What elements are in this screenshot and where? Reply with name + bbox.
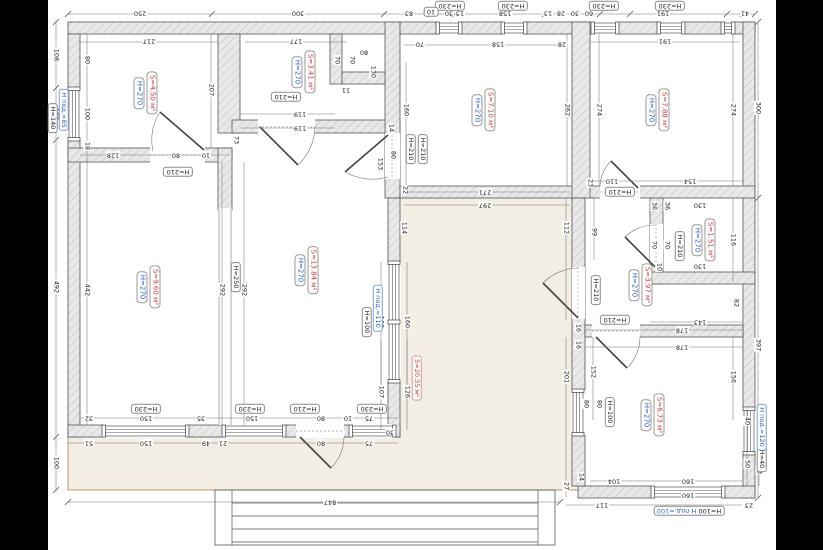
dimension-label: 80 [171,152,181,159]
dimension-label: 18 [84,141,91,151]
dimension-label: 23 [744,502,754,509]
dimension-label: 30 [385,429,395,436]
height-tag: H=230 [498,1,528,11]
dimension-label: 119 [293,111,307,118]
height-tag: H=210 [675,231,685,261]
dimension-label: 99 [591,227,598,237]
dimension-label: 28 [557,41,567,48]
height-tag: H=230 [235,404,265,414]
sill-height-tag: H под.=110 [373,285,383,332]
room-height-label: H=270 [692,224,703,256]
room-height-label: H=270 [134,77,145,109]
dimension-label: 262 [564,103,571,117]
dimension-label: 32 [84,415,94,422]
dimension-label: 73 [233,135,240,145]
dimension-label: 27 [563,481,570,491]
dimension-label: 274 [596,103,603,117]
height-tag: H=210 [271,92,301,102]
dimension-label: 150 [245,415,259,422]
dimension-label: 110 [605,178,619,185]
dimension-label: 128 [106,152,120,159]
room-height-label: H=270 [137,271,148,303]
height-tag: H=100 [605,397,615,427]
dimension-label: 80 [583,399,590,409]
room-area-label: S=13.84 м² [308,246,319,294]
dimension-label: 75 [364,415,374,422]
dimension-label: 178 [675,327,689,334]
dimension-label: 36 [664,201,671,211]
dimension-label: 40 [744,416,751,426]
dimension-label: 75 [364,440,374,447]
dimension-label: 153 [377,157,384,171]
dimension-label: 201 [563,370,570,384]
height-tag: H=230 [655,1,685,11]
label-layer: 2503008330131581328306019141217177701582… [0,0,823,550]
height-tag: H=230 [589,1,619,11]
dimension-label: 119 [293,125,307,132]
height-tag: H=230 [131,404,161,414]
dimension-label: 207 [208,83,215,97]
height-tag: H=210 [418,134,428,164]
dimension-label: 82 [733,298,740,308]
dimension-label: 250 [133,10,147,17]
dimension-label: 274 [730,103,737,117]
dimension-label: 49 [201,440,211,447]
dimension-label: 178 [675,344,689,351]
room-height-label: H=270 [295,254,306,286]
height-tag: H=210 [605,187,635,197]
dimension-label: 80 [316,415,326,422]
height-tag: H=230 [357,404,387,414]
dimension-label: 16 [575,323,582,333]
dimension-label: 158 [491,41,505,48]
room-height-label: H=270 [629,269,640,301]
dimension-label: 130 [693,263,707,270]
floor-plan-screenshot: 2503008330131581328306019141217177701582… [0,0,823,550]
room-height-label: H=270 [641,399,652,431]
dimension-label: 150 [139,440,153,447]
dimension-label: 41 [740,10,750,17]
height-tag: H=230 [435,1,465,11]
room-area-label: S=4.50 м² [147,71,158,114]
dimension-label: 104 [607,478,621,485]
room-area-label: S=6.73 м² [654,393,665,436]
room-area-label: S=9.60 м² [150,265,161,308]
room-area-label: S=1.51 м² [705,218,716,261]
room-area-label: S=3.97 м² [642,263,653,306]
dimension-label: 397 [755,338,762,352]
height-tag: H=210 [591,275,601,305]
dimension-label: 130 [370,65,377,79]
dimension-label: 100 [53,456,60,470]
dimension-label: 23 [587,178,594,188]
dimension-label: 11 [341,87,351,94]
dimension-label: 177 [289,38,303,45]
dimension-label: 300 [291,10,305,17]
dimension-label: 130 [693,202,707,209]
dimension-label: 492 [53,280,60,294]
height-tag: H=210 [406,134,416,164]
dimension-label: 21 [218,440,228,447]
dimension-label: 22 [402,185,409,195]
room-height-label: H=270 [646,94,657,126]
dimension-label: 442 [84,283,91,297]
dimension-label: 83 [404,10,414,17]
dimension-label: 292 [219,283,226,297]
height-tag: H=210 [600,315,630,325]
dimension-label: 10 [656,262,663,272]
dimension-label: 847 [323,499,337,506]
dimension-label: 152 [590,365,597,379]
dimension-label: 191 [658,38,672,45]
dimension-label: 116 [730,233,737,247]
dimension-label: 50 [744,459,751,469]
room-height-label: H=270 [292,56,303,88]
dimension-label: 70 [415,41,425,48]
dimension-label: 143 [693,319,707,326]
dimension-label: 300 [755,101,762,115]
height-tag: H=100 [362,307,372,337]
dimension-label: 160 [403,103,410,117]
dimension-label: 80 [596,399,603,409]
dimension-label: 16 [575,340,582,350]
height-tag: H=210 [290,404,320,414]
height-tag: 10 [423,7,438,17]
height-tag: H=140 [48,103,58,133]
dimension-label: 126 [404,385,411,399]
dimension-label: 80 [316,440,326,447]
room-height-label: H=270 [472,94,483,126]
dimension-label: 297 [478,202,492,209]
dimension-label: 107 [378,385,385,399]
dimension-label: 35 [196,415,206,422]
dimension-label: 117 [595,502,609,509]
height-tag: H=210 [163,167,193,177]
terrace-area-tag: S=20.35 м² [412,356,422,401]
dimension-label: 14 [578,472,585,482]
dimension-label: 108 [53,48,60,62]
height-tag: H=250 [231,262,241,292]
dimension-label: 112 [563,221,570,235]
dimension-label: 160 [681,492,695,499]
dimension-label: 292 [241,283,248,297]
room-area-label: S=7.10 м² [485,88,496,131]
sill-height-tag: H под.=120 [757,404,767,451]
dimension-label: 14 [388,123,395,133]
dimension-label: 160 [681,478,695,485]
sill-height-tag: H под.=85 [59,89,69,131]
dimension-label: 70 [664,240,671,250]
dimension-label: 70 [334,55,341,65]
dimension-label: 271 [478,189,492,196]
dimension-label: 114 [401,221,408,235]
dimension-label: 10 [201,152,211,159]
dimension-label: 28 [556,10,566,17]
dimension-label: 10 [343,415,353,422]
dimension-label: 217 [142,38,156,45]
dimension-label: 30 [570,10,580,17]
room-area-label: S=7.88 м² [659,88,670,131]
dimension-label: 80 [359,49,369,56]
dimension-label: 160 [404,315,411,329]
dimension-label: 36 [651,201,658,211]
dimension-label: 13 [543,10,553,17]
room-area-label: S=3.41 м² [305,50,316,93]
dimension-label: 100 [84,107,91,121]
dimension-label: 80 [390,150,397,160]
window-height-sill-tag: H=100 H под.=100 [653,506,724,516]
dimension-label: 70 [651,240,658,250]
dimension-label: 80 [84,55,91,65]
dimension-label: 154 [683,178,697,185]
dimension-label: 51 [84,440,94,447]
dimension-label: 150 [139,415,153,422]
dimension-label: 156 [730,370,737,384]
dimension-label: 70 [349,55,356,65]
